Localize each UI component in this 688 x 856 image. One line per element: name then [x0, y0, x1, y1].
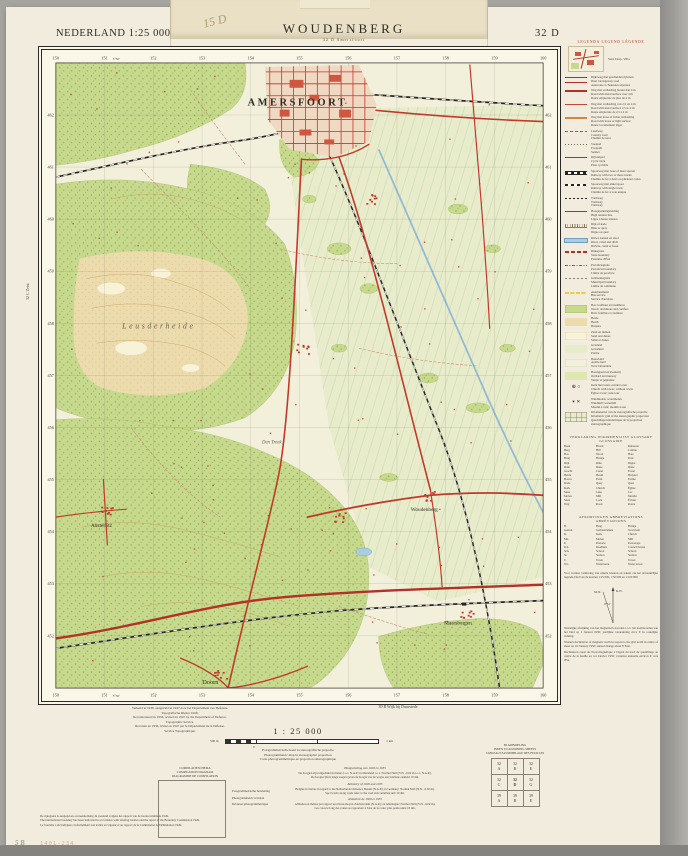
legend-item: Zand en duinenSand and dunesSable et dun… — [564, 331, 658, 343]
svg-text:158: 158 — [442, 55, 448, 60]
index-cell: 32A — [491, 759, 507, 775]
roado-symbol — [565, 117, 587, 118]
legend-item: Kilometernet van de stereografische proj… — [564, 411, 658, 427]
place-label: 5°30' — [113, 57, 120, 61]
legend-item: LandwegCountry roadChemin de terre — [564, 130, 658, 142]
svg-text:155: 155 — [296, 55, 302, 60]
legend-item: ProvinciegrensProvincial boundaryLimite … — [564, 264, 658, 276]
road1-symbol — [565, 90, 587, 92]
legend-item: Weg met verharding breder dan 4 mRoad wi… — [564, 89, 658, 101]
place-label: Woudenberg — [411, 507, 438, 513]
abbrev-title: AFKORTINGEN ABBREVIATIONS ABRÉVIATIONS — [564, 515, 658, 523]
place-label: Leusderheide — [121, 321, 195, 330]
scale-bar: 500 m 0 1 km — [225, 739, 379, 744]
place-label: Maarsbergen — [444, 620, 472, 626]
declination-nl: Westelijke afwijking van het magnetisch … — [564, 627, 658, 638]
neighbor-sheet-left: 32 C Zeist — [25, 283, 30, 300]
map-inner-frame: 1501501511511521521531531541541551551561… — [41, 49, 558, 702]
town-sample-caption: Stad. Dorp. Villa — [608, 57, 630, 61]
asand-symbol — [565, 332, 587, 340]
projection-notes: Fotogrammetrische kaart in stereografisc… — [198, 748, 398, 762]
place-label: Den Treek — [261, 441, 282, 446]
topographic-map: 1501501511511521521531531541541551551561… — [42, 50, 557, 701]
svg-text:153: 153 — [199, 55, 205, 60]
svg-text:151: 151 — [101, 693, 107, 698]
index-cell: 32B — [507, 759, 523, 775]
svg-text:154: 154 — [248, 55, 255, 60]
svg-text:157: 157 — [394, 55, 400, 60]
catalog-stamp: 1401-234 — [40, 841, 75, 847]
glossary-title: VERKLARING WOORDENLIJST GLOSSARY GLOSSAI… — [564, 435, 658, 443]
dyke-symbol — [565, 224, 587, 228]
legend-item: HeideHeathBruyère — [564, 317, 658, 329]
index-cell: 39B — [507, 791, 523, 807]
place-label: AMERSFOORT — [248, 98, 348, 109]
svg-text:151: 151 — [101, 55, 107, 60]
legend-title: LEGENDA LEGEND LÉGENDE — [564, 40, 658, 44]
svg-text:460: 460 — [545, 217, 551, 222]
legend-item: TramwegTramwayTramway — [564, 197, 658, 209]
compilation-diagram-box — [158, 780, 226, 838]
legend-town-sample: Stad. Dorp. Villa — [568, 46, 658, 72]
dash-symbol — [565, 131, 587, 132]
neighbor-sheet-bottom: 39 B Wijk bij Duurstede — [208, 704, 588, 709]
bgem-symbol — [565, 278, 587, 279]
svg-text:454: 454 — [545, 529, 552, 534]
scale-left-label: 500 m — [210, 739, 219, 743]
grid-north-label: K.N. — [616, 589, 623, 593]
mill-symbol — [565, 399, 587, 405]
sheet-number: 32 D — [535, 28, 560, 39]
sheet-index-titles: BLADINDELINGINDEX TO ADJOINING SHEETSTAB… — [452, 744, 578, 755]
legend-item: RijwielpadCycle trackPiste cyclable — [564, 156, 658, 168]
glossary-table: BeekBrookRuisseauBergHillCollineBosWoodB… — [564, 445, 658, 507]
svg-text:459: 459 — [48, 269, 54, 274]
sheet-index: BLADINDELINGINDEX TO ADJOINING SHEETSTAB… — [452, 744, 578, 807]
legend-item: AutobusdienstBus serviceService d'autobu… — [564, 291, 658, 303]
svg-text:152: 152 — [150, 55, 156, 60]
svg-text:461: 461 — [48, 165, 54, 170]
svg-text:155: 155 — [296, 693, 302, 698]
water-symbol — [564, 238, 588, 243]
station-marker — [462, 603, 466, 606]
index-cell: 32G — [523, 775, 539, 791]
agreen-symbol — [565, 305, 587, 313]
svg-text:462: 462 — [545, 112, 551, 117]
rail1-symbol — [565, 184, 587, 185]
svg-text:457: 457 — [545, 373, 551, 378]
svg-text:453: 453 — [545, 581, 551, 586]
altimetry-notes: Hoogtemeting van 1926 en 1935De hoogten … — [252, 764, 478, 811]
legend-item: BouwlandArable landTerre labourable — [564, 358, 658, 370]
svg-text:153: 153 — [199, 693, 205, 698]
svg-text:159: 159 — [491, 693, 497, 698]
aheath-symbol — [565, 318, 587, 326]
svg-text:454: 454 — [48, 529, 55, 534]
scale-right-label: 1 km — [386, 739, 393, 743]
index-cell: 32C — [491, 775, 507, 791]
yellow-symbol — [565, 292, 587, 294]
scale-bar-main — [256, 740, 378, 743]
legend-item: GemeentegrensMunicipal boundaryLimite de… — [564, 277, 658, 289]
scale-label: 1 : 25 000 — [148, 726, 448, 736]
declination-diagram: K.N. M.N. 0°51' — [564, 583, 658, 625]
rail2-symbol — [565, 171, 587, 175]
declination-en: Western declination of magnetic north in… — [564, 641, 658, 649]
legend-item: Weg met losse of lichte verhardingRoad w… — [564, 116, 658, 128]
compilation-title: COMPILATIESCHEMACOMPILATION DIAGRAMDIAGR… — [140, 766, 250, 778]
legend-item: GraslandGrasslandPrairie — [564, 344, 658, 356]
scan-background — [660, 0, 688, 856]
svg-text:452: 452 — [48, 633, 54, 638]
svg-text:455: 455 — [545, 477, 551, 482]
lake — [356, 548, 372, 556]
legend-note: Voor verdere verklaring van enkele kleur… — [564, 572, 658, 580]
roadm-symbol — [565, 104, 587, 105]
sgrid-symbol — [565, 412, 587, 422]
legend-item: Rijksweg met gescheiden rijbanenDual car… — [564, 76, 658, 88]
svg-text:455: 455 — [48, 477, 54, 482]
place-label: Austerlitz — [91, 523, 113, 529]
legend-item: HoogspanningsleidingHigh tension lineLig… — [564, 210, 658, 222]
svg-text:150: 150 — [53, 55, 59, 60]
declination-fr: Déclinaison ouest du Nord magnétique à l… — [564, 651, 658, 662]
legend-item: Weg met verharding van 2,5 tot 4 mRoad w… — [564, 103, 658, 115]
power-symbol — [565, 211, 587, 212]
aorchard-symbol — [565, 372, 587, 380]
town-sample-art — [568, 46, 604, 72]
road2-symbol — [565, 77, 587, 83]
scale-bar-subdivision — [226, 740, 256, 743]
svg-text:456: 456 — [545, 425, 551, 430]
aarable-symbol — [565, 359, 587, 367]
svg-text:156: 156 — [345, 693, 351, 698]
sheet-title: WOUDENBERG — [0, 21, 688, 37]
legend-item: Spoorweg met enkel spoorRailway with sin… — [564, 183, 658, 195]
svg-text:160: 160 — [540, 693, 546, 698]
legend-column: LEGENDA LEGEND LÉGENDE Stad. Dorp. Villa… — [564, 40, 658, 842]
svg-text:158: 158 — [442, 693, 448, 698]
svg-text:156: 156 — [345, 55, 351, 60]
place-label: Doorn — [202, 679, 219, 686]
agrass-symbol — [565, 345, 587, 353]
legend-item: RijksgrensState boundaryFrontière d'État — [564, 250, 658, 262]
tram-symbol — [565, 198, 587, 199]
svg-text:154: 154 — [248, 693, 255, 698]
thin-symbol — [565, 157, 587, 158]
legend-item: Bos: loofhout en naaldhoutWood: deciduou… — [564, 304, 658, 316]
bprov-symbol — [565, 265, 587, 266]
svg-text:152: 152 — [150, 693, 156, 698]
index-cell: 39E — [523, 791, 539, 807]
legend-item: Kerk met toren; zonder torenChurch with … — [564, 384, 658, 396]
legend-item: Spoorweg met twee of meer sporenRailway … — [564, 170, 658, 182]
place-label: 5°30' — [113, 694, 120, 698]
pencil-mark: 5 B — [15, 839, 25, 847]
svg-text:458: 458 — [48, 321, 54, 326]
scan-background — [0, 845, 688, 856]
index-cell: 32D — [507, 775, 523, 791]
magnetic-north-label: M.N. — [594, 590, 601, 594]
svg-text:157: 157 — [394, 693, 400, 698]
declination-texts: Westelijke afwijking van het magnetisch … — [564, 627, 658, 662]
svg-text:160: 160 — [540, 55, 546, 60]
legend-item: VoetpadFootpathSentier — [564, 143, 658, 155]
folded-flap-tab — [300, 0, 370, 9]
svg-text:159: 159 — [491, 55, 497, 60]
svg-text:459: 459 — [545, 269, 551, 274]
map-frame: 1501501511511521521531531541541551551561… — [38, 46, 561, 705]
svg-text:457: 457 — [48, 373, 54, 378]
dots-symbol — [565, 144, 587, 145]
legend-items: Rijksweg met gescheiden rijbanenDual car… — [564, 76, 658, 427]
svg-text:452: 452 — [545, 633, 551, 638]
svg-text:461: 461 — [545, 165, 551, 170]
legend-item: Dijk of kadeDike or quayDigue ou quai — [564, 223, 658, 235]
bred-symbol — [565, 251, 587, 253]
boundary-note: De rijksgrens is aangegeven overeenkomst… — [40, 814, 370, 827]
svg-text:453: 453 — [48, 581, 54, 586]
svg-text:462: 462 — [48, 112, 54, 117]
abbreviations-table: B.BrugBridgeGem.h.GemeentehuisTown hallK… — [564, 525, 658, 566]
svg-text:150: 150 — [53, 693, 59, 698]
svg-text:458: 458 — [545, 321, 551, 326]
legend-item: Windmolen; watermolenWindmill; watermill… — [564, 398, 658, 410]
index-cell: 39A — [491, 791, 507, 807]
declination-angle: 0°51' — [604, 602, 611, 606]
legend-item: Rivier, kanaal en slootRiver, canal and … — [564, 237, 658, 249]
index-cell: 32E — [523, 759, 539, 775]
svg-text:456: 456 — [48, 425, 54, 430]
svg-text:460: 460 — [48, 217, 54, 222]
legend-item: Boomgaard en kwekerijOrchard and nursery… — [564, 371, 658, 383]
church-symbol — [565, 385, 587, 391]
